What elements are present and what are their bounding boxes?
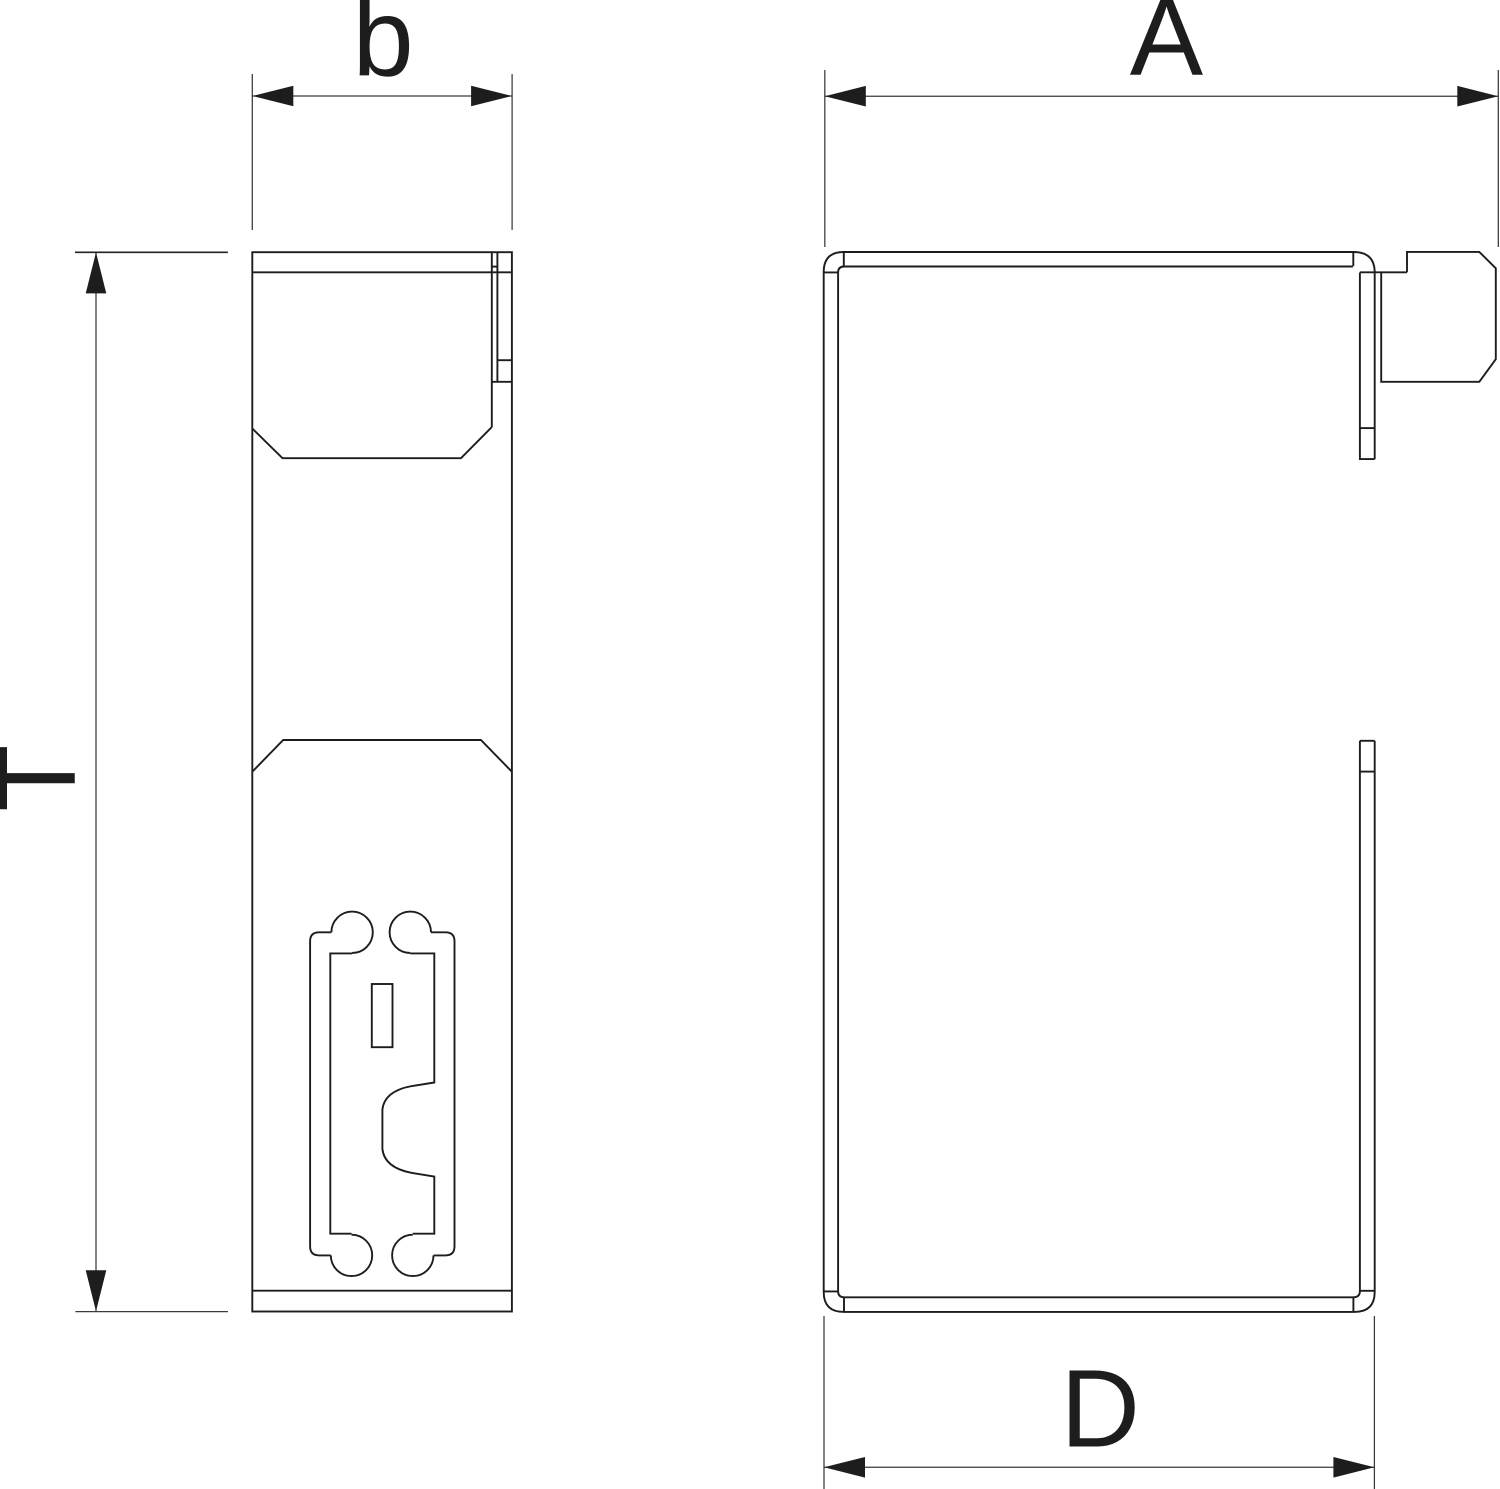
svg-text:b: b: [353, 0, 414, 100]
svg-text:T: T: [0, 745, 99, 812]
svg-text:D: D: [1061, 1348, 1140, 1471]
svg-text:A: A: [1130, 0, 1204, 99]
